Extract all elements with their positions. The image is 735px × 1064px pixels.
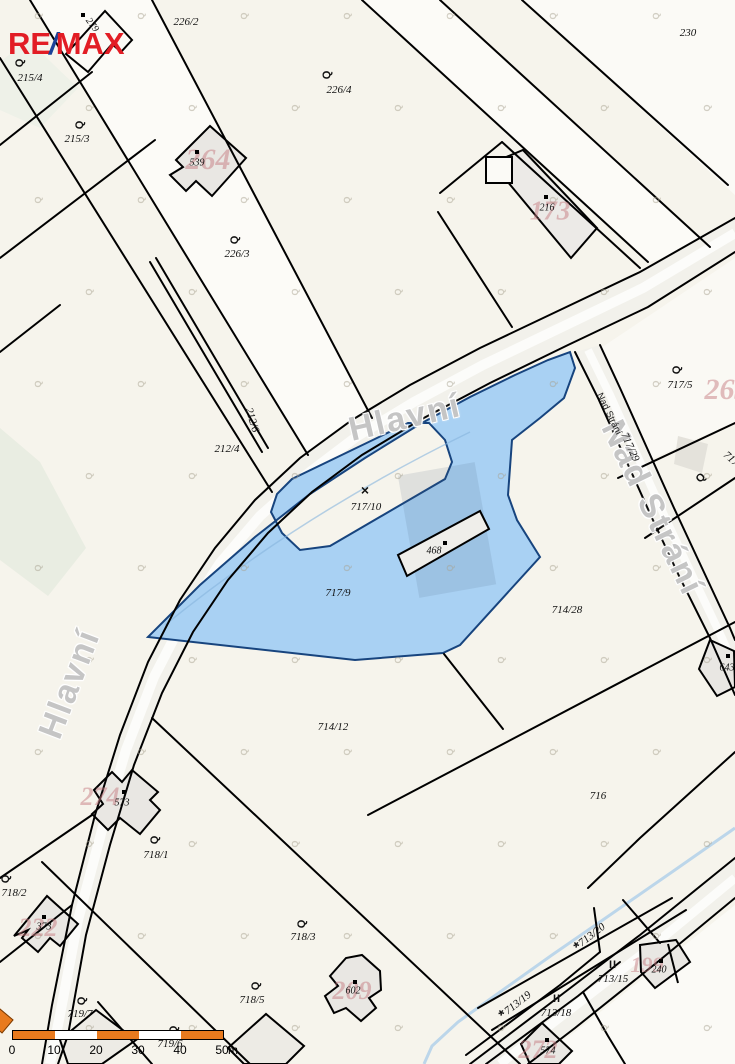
logo-max: MAX [56,26,125,61]
building-number-label: 643 [720,663,735,674]
landuse-pattern-symbol: Q [651,380,661,387]
landuse-pattern-symbol: Q [33,748,43,755]
building-number-label: 240 [652,965,667,976]
parcel-label: 717/9 [325,587,350,599]
logo-re: RE [8,26,51,61]
scale-bar [12,1030,224,1040]
landuse-pattern-symbol: Q [342,12,352,19]
landuse-pattern-symbol: Q [342,196,352,203]
landuse-pattern-symbol: Q [702,656,712,663]
garden-symbol-icon: Q [76,997,88,1006]
scale-segment [139,1031,181,1039]
landuse-pattern-symbol: Q [548,380,558,387]
landuse-pattern-symbol: Q [187,656,197,663]
remax-logo: RE/MAX [8,26,125,62]
landuse-pattern-symbol: Q [290,840,300,847]
landuse-pattern-symbol: Q [496,1024,506,1031]
landuse-pattern-symbol: Q [84,288,94,295]
landuse-pattern-symbol: Q [84,104,94,111]
meadow-symbol-icon: II [609,959,617,971]
landuse-pattern-symbol: Q [393,840,403,847]
parcel-label: 713/15 [598,973,629,985]
landuse-pattern-symbol: Q [290,472,300,479]
map-geometry [0,0,735,1064]
building-dot-icon [195,150,199,154]
parcel-label: 718/2 [1,887,26,899]
landuse-pattern-symbol: Q [393,656,403,663]
landuse-pattern-symbol: Q [342,564,352,571]
landuse-pattern-symbol: Q [445,748,455,755]
building-216-annex [486,157,512,183]
landuse-pattern-symbol: Q [445,564,455,571]
landuse-pattern-symbol: Q [187,472,197,479]
parcel-label: 719/7 [67,1008,92,1020]
ghost-parcel-number: 263 [705,373,735,407]
landuse-pattern-symbol: Q [702,1024,712,1031]
landuse-pattern-symbol: Q [342,748,352,755]
landuse-pattern-symbol: Q [548,12,558,19]
scale-tick-label: 50 [215,1043,228,1057]
building-number-label: 468 [427,546,442,557]
garden-symbol-icon: Q [321,71,333,80]
garden-symbol-icon: Q [229,236,241,245]
building-dot-icon [443,541,447,545]
garden-symbol-icon: Q [296,920,308,929]
landuse-pattern-symbol: Q [393,1024,403,1031]
landuse-pattern-symbol: Q [33,12,43,19]
building-number-label: 373 [37,922,52,933]
landuse-pattern-symbol: Q [33,564,43,571]
parcel-label: 718/3 [290,931,315,943]
meadow-symbol-icon: II [553,993,561,1005]
landuse-pattern-symbol: Q [651,748,661,755]
scale-tick-label: 0 [9,1043,16,1057]
landuse-pattern-symbol: Q [702,288,712,295]
parcel-label: 714/28 [552,604,583,616]
landuse-pattern-symbol: Q [239,564,249,571]
landuse-pattern-symbol: Q [342,932,352,939]
building-number-label: 573 [115,798,130,809]
landuse-pattern-symbol: Q [290,288,300,295]
landuse-pattern-symbol: Q [393,288,403,295]
landuse-pattern-symbol: Q [187,840,197,847]
landuse-pattern-symbol: Q [239,196,249,203]
parcel-label: 714/12 [318,721,349,733]
landuse-pattern-symbol: Q [548,748,558,755]
landuse-pattern-symbol: Q [496,472,506,479]
landuse-pattern-symbol: Q [702,104,712,111]
building-dot-icon [353,980,357,984]
parcel-label: 215/3 [64,133,89,145]
landuse-pattern-symbol: Q [599,1024,609,1031]
parcel-label: 215/4 [17,72,42,84]
parcel-label: 713/18 [541,1007,572,1019]
parcel-label: 716 [590,790,607,802]
landuse-pattern-symbol: Q [599,656,609,663]
ruin-symbol-icon: × [361,482,369,498]
building-dot-icon [544,195,548,199]
landuse-pattern-symbol: Q [136,380,146,387]
parcel-label: 230 [680,27,697,39]
parcel-label: 718/1 [143,849,168,861]
parcel-label: 717/10 [351,501,382,513]
building-number-label: 216 [540,203,555,214]
scale-segment [13,1031,55,1039]
landuse-pattern-symbol: Q [599,840,609,847]
landuse-pattern-symbol: Q [290,104,300,111]
landuse-pattern-symbol: Q [33,380,43,387]
parcel-label: 212/4 [214,443,239,455]
landuse-pattern-symbol: Q [651,12,661,19]
landuse-pattern-symbol: Q [445,12,455,19]
landuse-pattern-symbol: Q [548,932,558,939]
landuse-pattern-symbol: Q [599,288,609,295]
scale-segment [55,1031,97,1039]
garden-symbol-icon: Q [0,875,12,884]
landuse-pattern-symbol: Q [84,840,94,847]
garden-symbol-icon: Q [671,366,683,375]
landuse-pattern-symbol: Q [496,656,506,663]
building-dot-icon [659,959,663,963]
scale-tick-label: 40 [173,1043,186,1057]
landuse-pattern-symbol: Q [496,840,506,847]
landuse-pattern-symbol: Q [136,564,146,571]
building-number-label: 602 [346,986,361,997]
building-number-label: 574 [541,1046,556,1057]
scale-tick-label: 10 [47,1043,60,1057]
building-dot-icon [122,790,126,794]
parcel-label: 718/5 [239,994,264,1006]
parcel-label: 226/2 [173,16,198,28]
landuse-pattern-symbol: Q [290,1024,300,1031]
parcel-label: 226/4 [326,84,351,96]
cadastral-map: RE/MAX m QQQQQQQQQQQQQQQQQQQQQQQQQQQQQQQ… [0,0,735,1064]
landuse-pattern-symbol: Q [33,196,43,203]
landuse-pattern-symbol: Q [496,104,506,111]
landuse-pattern-symbol: Q [136,12,146,19]
landuse-pattern-symbol: Q [84,472,94,479]
landuse-pattern-symbol: Q [187,104,197,111]
landuse-pattern-symbol: Q [393,472,403,479]
scale-segment [181,1031,223,1039]
building-dot-icon [42,915,46,919]
landuse-pattern-symbol: Q [599,104,609,111]
scale-segment [97,1031,139,1039]
landuse-pattern-symbol: Q [239,932,249,939]
landuse-pattern-symbol: Q [445,196,455,203]
scale-tick-label: 20 [89,1043,102,1057]
landuse-pattern-symbol: Q [187,288,197,295]
garden-symbol-icon: Q [74,121,86,130]
landuse-pattern-symbol: Q [445,932,455,939]
landuse-pattern-symbol: Q [599,472,609,479]
scale-unit: m [228,1043,238,1057]
landuse-pattern-symbol: Q [393,104,403,111]
landuse-pattern-symbol: Q [342,380,352,387]
landuse-pattern-symbol: Q [548,564,558,571]
landuse-pattern-symbol: Q [136,932,146,939]
landuse-pattern-symbol: Q [702,840,712,847]
scale-tick-label: 30 [131,1043,144,1057]
landuse-pattern-symbol: Q [290,656,300,663]
garden-symbol-icon: Q [250,982,262,991]
building-dot-icon [81,13,85,17]
landuse-pattern-symbol: Q [239,748,249,755]
parcel-label: 717/5 [667,379,692,391]
landuse-pattern-symbol: Q [136,196,146,203]
landuse-pattern-symbol: Q [239,12,249,19]
landuse-pattern-symbol: Q [651,196,661,203]
landuse-pattern-symbol: Q [239,380,249,387]
building-dot-icon [545,1038,549,1042]
landuse-pattern-symbol: Q [651,932,661,939]
building-number-label: 539 [190,158,205,169]
building-dot-icon [726,654,730,658]
garden-symbol-icon: Q [149,836,161,845]
parcel-label: 226/3 [224,248,249,260]
landuse-pattern-symbol: Q [496,288,506,295]
landuse-pattern-symbol: Q [136,748,146,755]
